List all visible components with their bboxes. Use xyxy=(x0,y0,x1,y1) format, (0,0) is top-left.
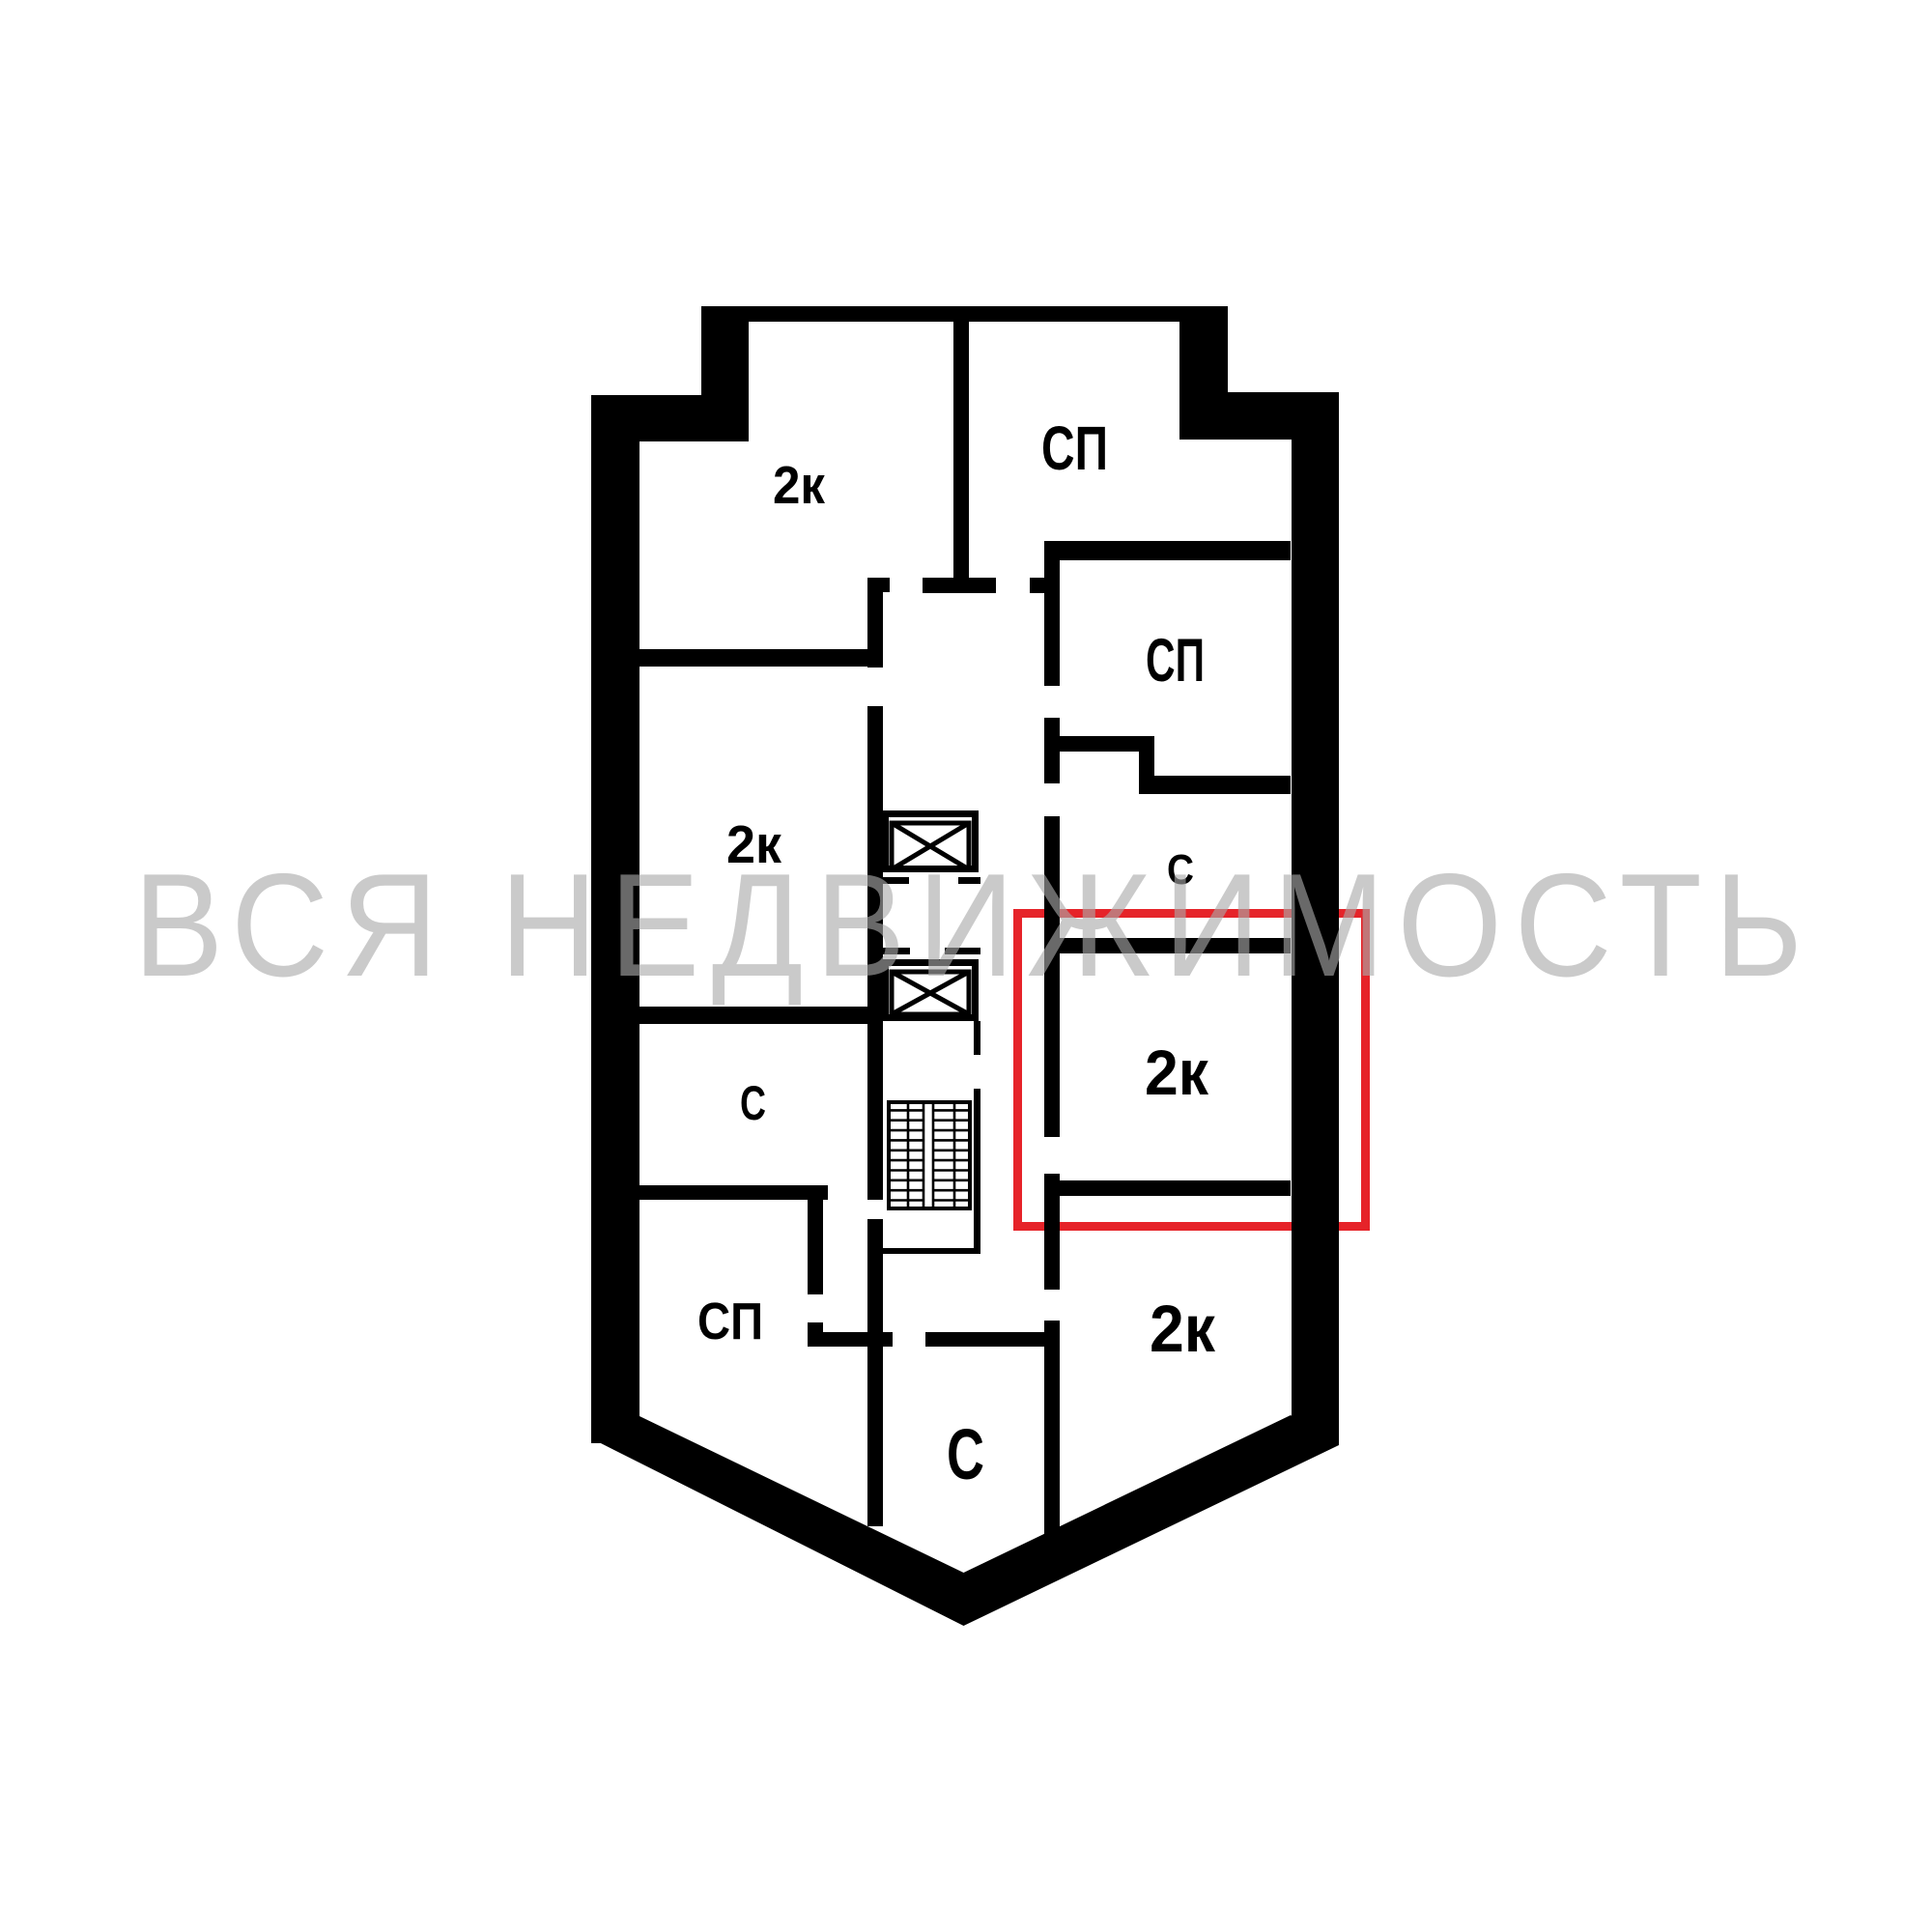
svg-text:СП: СП xyxy=(697,1293,763,1350)
svg-text:2к: 2к xyxy=(773,455,825,515)
svg-text:С: С xyxy=(740,1076,766,1130)
svg-text:2к: 2к xyxy=(1150,1292,1215,1366)
svg-text:С: С xyxy=(947,1414,984,1494)
svg-text:СП: СП xyxy=(1041,413,1108,483)
svg-text:ВСЯ НЕДВИЖИМОСТЬ: ВСЯ НЕДВИЖИМОСТЬ xyxy=(133,843,1815,1008)
svg-text:2к: 2к xyxy=(1145,1037,1209,1108)
svg-text:СП: СП xyxy=(1146,627,1205,695)
